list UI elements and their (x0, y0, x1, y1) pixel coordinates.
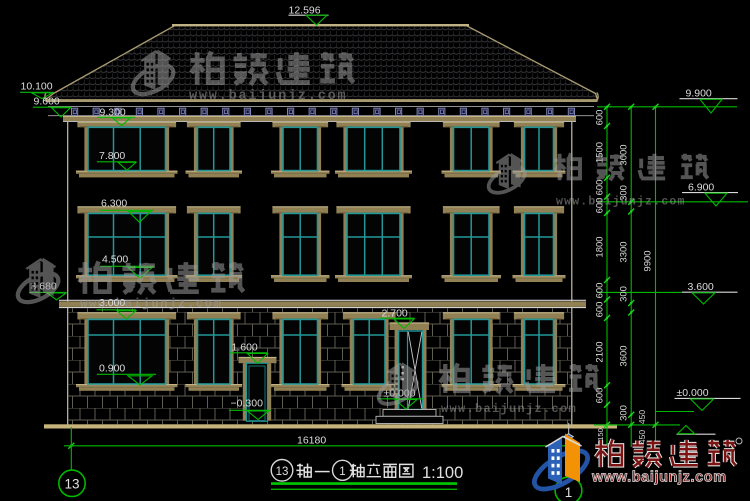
svg-text:4.500: 4.500 (102, 254, 128, 266)
svg-text:1800: 1800 (595, 236, 606, 257)
svg-text:300: 300 (619, 405, 630, 421)
svg-text:9.600: 9.600 (34, 96, 60, 108)
svg-text:www.baijunjz.com: www.baijunjz.com (591, 470, 727, 486)
svg-text:1.600: 1.600 (232, 341, 258, 353)
svg-text:16180: 16180 (297, 435, 326, 447)
svg-text:600: 600 (595, 110, 606, 126)
svg-text:9.300: 9.300 (100, 106, 126, 118)
svg-text:±0.000: ±0.000 (677, 387, 709, 399)
svg-text:www.baijunjz.com: www.baijunjz.com (556, 196, 686, 209)
svg-text:www.baijunjz.com: www.baijunjz.com (80, 297, 222, 311)
svg-text:1:100: 1:100 (422, 464, 463, 482)
svg-text:13: 13 (64, 476, 79, 491)
svg-text:600: 600 (595, 283, 606, 299)
svg-text:10.100: 10.100 (21, 81, 53, 93)
svg-text:600: 600 (595, 180, 606, 196)
svg-text:450: 450 (637, 410, 647, 424)
svg-text:9.900: 9.900 (686, 88, 712, 100)
svg-text:3.600: 3.600 (688, 281, 714, 293)
svg-text:www.baijunjz.com: www.baijunjz.com (189, 89, 347, 104)
svg-text:600: 600 (595, 302, 606, 318)
svg-text:1: 1 (565, 485, 573, 500)
svg-text:3600: 3600 (619, 345, 630, 366)
svg-text:300: 300 (619, 286, 630, 302)
svg-text:9900: 9900 (643, 250, 654, 271)
svg-text:0.900: 0.900 (99, 363, 125, 375)
svg-text:2100: 2100 (595, 341, 606, 362)
svg-text:2.700: 2.700 (382, 307, 408, 319)
svg-text:1: 1 (339, 466, 345, 478)
svg-text:7.800: 7.800 (99, 150, 125, 162)
svg-text:13: 13 (276, 466, 289, 478)
svg-text:−0.300: −0.300 (231, 398, 264, 410)
svg-text:www.baijunjz.com: www.baijunjz.com (441, 402, 577, 416)
svg-text:6.300: 6.300 (101, 198, 127, 210)
svg-text:3300: 3300 (619, 241, 630, 262)
svg-text:6.900: 6.900 (688, 181, 714, 193)
svg-text:150: 150 (596, 428, 605, 441)
